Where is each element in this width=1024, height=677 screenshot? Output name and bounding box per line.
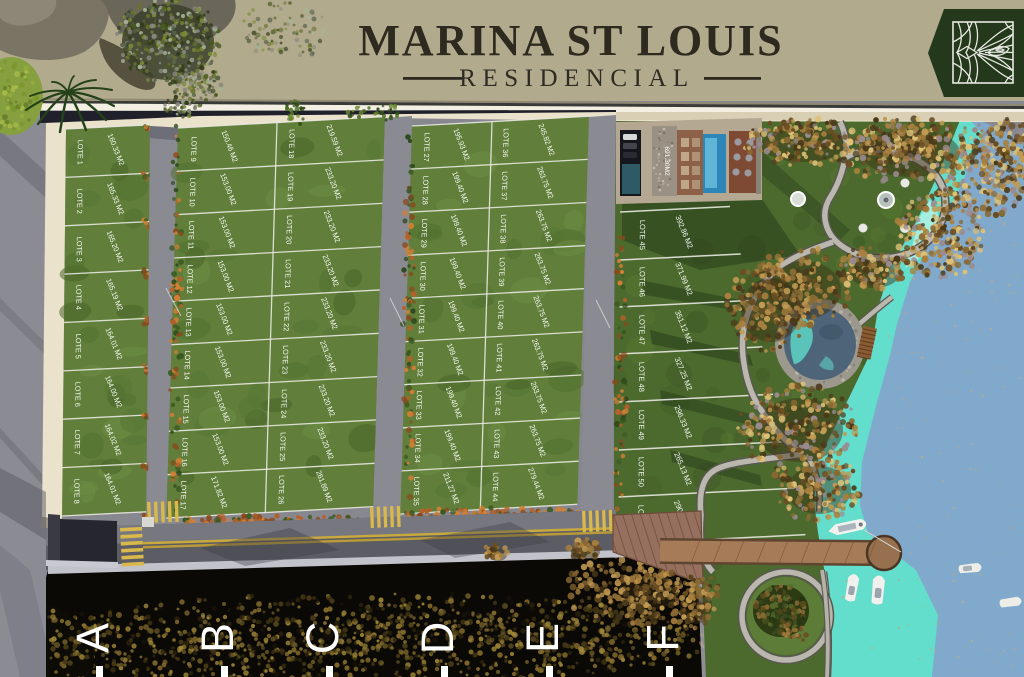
svg-text:LOTE 34: LOTE 34 — [413, 433, 423, 463]
svg-text:A: A — [67, 623, 118, 653]
svg-text:LOTE 20: LOTE 20 — [284, 215, 294, 245]
svg-text:LOTE 46: LOTE 46 — [638, 267, 647, 297]
svg-text:B: B — [192, 623, 243, 653]
svg-text:LOTE 31: LOTE 31 — [417, 304, 427, 334]
svg-text:F: F — [637, 624, 688, 652]
svg-text:LOTE 36: LOTE 36 — [501, 128, 511, 158]
svg-text:LOTE 8: LOTE 8 — [72, 478, 81, 504]
svg-text:LOTE 44: LOTE 44 — [491, 472, 501, 502]
svg-text:LOTE 23: LOTE 23 — [280, 345, 290, 375]
svg-text:691.30M2: 691.30M2 — [663, 146, 670, 176]
svg-text:LOTE 35: LOTE 35 — [412, 476, 422, 506]
svg-text:LOTE 38: LOTE 38 — [498, 214, 508, 244]
svg-text:LOTE 14: LOTE 14 — [182, 350, 192, 380]
svg-text:LOTE 25: LOTE 25 — [278, 432, 288, 462]
svg-text:LOTE 39: LOTE 39 — [497, 257, 507, 287]
svg-text:E: E — [517, 623, 568, 653]
svg-text:LOTE 29: LOTE 29 — [419, 218, 429, 248]
svg-text:LOTE 11: LOTE 11 — [186, 221, 196, 250]
svg-text:LOTE 26: LOTE 26 — [277, 475, 287, 505]
svg-text:LOTE 17: LOTE 17 — [179, 480, 189, 510]
svg-text:LOTE 48: LOTE 48 — [637, 362, 646, 392]
svg-text:C: C — [297, 622, 348, 655]
svg-text:LOTE 45: LOTE 45 — [638, 220, 647, 250]
svg-text:LOTE 1: LOTE 1 — [76, 139, 85, 165]
svg-text:LOTE 47: LOTE 47 — [637, 315, 646, 345]
svg-text:LOTE 13: LOTE 13 — [184, 307, 194, 337]
svg-text:LOTE 42: LOTE 42 — [493, 386, 503, 416]
svg-text:LOTE 28: LOTE 28 — [421, 175, 431, 205]
svg-text:LOTE 2: LOTE 2 — [75, 188, 84, 214]
svg-text:LOTE 37: LOTE 37 — [500, 171, 510, 201]
svg-text:LOTE 50: LOTE 50 — [637, 457, 646, 487]
svg-text:LOTE 7: LOTE 7 — [73, 429, 82, 455]
svg-text:LOTE 41: LOTE 41 — [494, 343, 504, 373]
svg-text:LOTE 9: LOTE 9 — [189, 136, 199, 162]
svg-text:LOTE 33: LOTE 33 — [414, 390, 424, 420]
svg-text:LOTE 12: LOTE 12 — [185, 264, 195, 294]
svg-text:LOTE 43: LOTE 43 — [492, 429, 502, 459]
svg-text:LOTE 4: LOTE 4 — [74, 284, 83, 310]
svg-text:LOTE 27: LOTE 27 — [422, 132, 432, 162]
svg-text:LOTE 6: LOTE 6 — [73, 381, 82, 407]
svg-text:LOTE 40: LOTE 40 — [496, 300, 506, 330]
svg-text:LOTE 3: LOTE 3 — [75, 236, 84, 262]
svg-text:D: D — [412, 622, 463, 655]
svg-text:LOTE 10: LOTE 10 — [188, 177, 198, 207]
svg-text:LOTE 49: LOTE 49 — [637, 410, 646, 440]
svg-text:LOTE 22: LOTE 22 — [282, 302, 292, 332]
svg-text:LOTE 15: LOTE 15 — [181, 394, 191, 424]
svg-text:LOTE 5: LOTE 5 — [74, 333, 83, 359]
svg-text:LOTE 21: LOTE 21 — [283, 259, 293, 289]
svg-text:LOTE 32: LOTE 32 — [415, 347, 425, 377]
svg-text:LOTE 30: LOTE 30 — [418, 261, 428, 291]
svg-text:LOTE 19: LOTE 19 — [286, 172, 296, 202]
svg-text:LOTE 18: LOTE 18 — [287, 129, 297, 159]
svg-text:LOTE 24: LOTE 24 — [279, 389, 289, 419]
